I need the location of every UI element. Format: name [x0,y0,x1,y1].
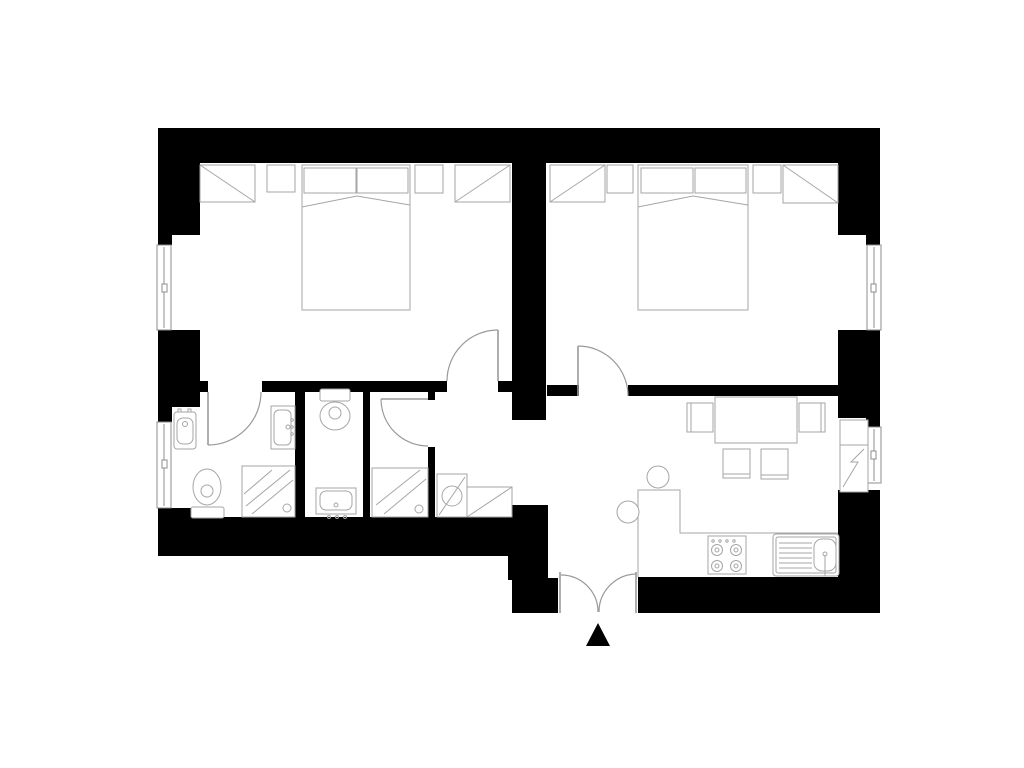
nightstand-bedroom2-left [607,165,633,193]
bidet-bathroom1 [174,409,196,449]
wardrobe-bedroom2-right [783,165,838,203]
bidet-bathroom1-shape [178,409,181,412]
bidet-bathroom1-shape [188,409,191,412]
nightstand-bedroom1-right-shape [415,165,443,193]
bed-bedroom2-shape [695,168,746,193]
stool-1 [647,466,669,488]
wall-left-mid [158,330,200,407]
radiator-kitchen [840,420,868,492]
wall-between-bedrooms [512,163,546,420]
wall-right-upper-step [866,235,880,245]
wall-bedroom1-bottom-c [498,381,512,392]
wall-right-mid [838,330,880,418]
window-kitchen-handle [871,451,876,459]
wall-left-mid-step [158,407,172,422]
wall-shower-room-corridor-lower [428,447,435,520]
stool-1-shape [647,466,669,488]
shower-shower-room-shape [415,505,423,513]
corridor-counter [467,487,512,517]
wall-bedroom2-bottom-b [628,385,838,396]
nightstand-bedroom1-left [267,165,295,192]
window-bedroom1-handle [162,284,167,292]
floor-plan-page [0,0,1024,768]
window-bedroom2-handle [871,284,876,292]
nightstand-bedroom1-right [415,165,443,193]
bed-bedroom1-shape [304,168,356,193]
nightstand-bedroom2-right [753,165,781,193]
window-bedroom2-icon [867,245,881,330]
wall-vestibule-left-lower [512,578,558,613]
wall-right-upper [838,163,880,235]
wall-bottom-right-band [638,577,880,613]
wall-bathroom1-wc [295,392,305,517]
shower-bathroom1-shape [283,504,291,512]
stove [708,536,746,574]
stool-2-shape [617,501,639,523]
bed-bedroom1-shape [357,168,408,193]
chair-bottom-1 [723,449,750,478]
wall-left-upper-step [158,235,172,245]
wall-bottom-left-band [158,517,512,556]
shower-shower-room [372,468,428,517]
window-kitchen-icon [867,427,881,483]
vanity-sink-bathroom1 [271,406,295,449]
floor-plan-svg [0,0,1024,768]
wardrobe-bedroom1-left [200,165,255,202]
washing-machine [437,474,467,517]
toilet-bathroom1-shape [191,507,224,518]
nightstand-bedroom2-right-shape [753,165,781,193]
chair-left [687,403,713,432]
toilet-bathroom1-shape [201,485,213,497]
toilet-wc-shape [329,407,341,419]
bed-bedroom2-shape [641,168,693,193]
toilet-wc [320,389,350,430]
sink-wc [316,488,356,519]
wall-vestibule-left-block [508,505,548,580]
dining-table-shape [715,397,797,443]
chair-bottom-2 [761,449,788,479]
window-bedroom1-icon [157,245,171,330]
nightstand-bedroom1-left-shape [267,165,295,192]
window-bathroom1-handle [162,460,167,468]
wall-left-upper [158,163,200,235]
nightstand-bedroom2-left-shape [607,165,633,193]
window-bathroom1-icon [157,422,171,508]
wall-bedroom2-bottom-a [547,385,579,396]
wall-wc-shower-room [363,392,370,517]
stool-2 [617,501,639,523]
wardrobe-bedroom2-left [550,165,605,202]
bed-bedroom1 [302,165,410,310]
dining-table [715,397,797,443]
wall-top [158,128,880,163]
wall-bedroom1-bottom-b [262,381,447,392]
wardrobe-bedroom1-right [455,165,510,202]
chair-right [799,403,825,432]
shower-bathroom1 [242,466,295,517]
vanity-sink-bathroom1-shape [274,410,291,445]
radiator-kitchen-shape [840,420,868,445]
bed-bedroom2 [638,165,748,310]
wall-shower-room-corridor-upper [428,392,435,400]
toilet-wc-shape [320,389,350,401]
kitchen-sink [773,534,839,576]
wall-bedroom1-bottom-a [200,381,208,392]
